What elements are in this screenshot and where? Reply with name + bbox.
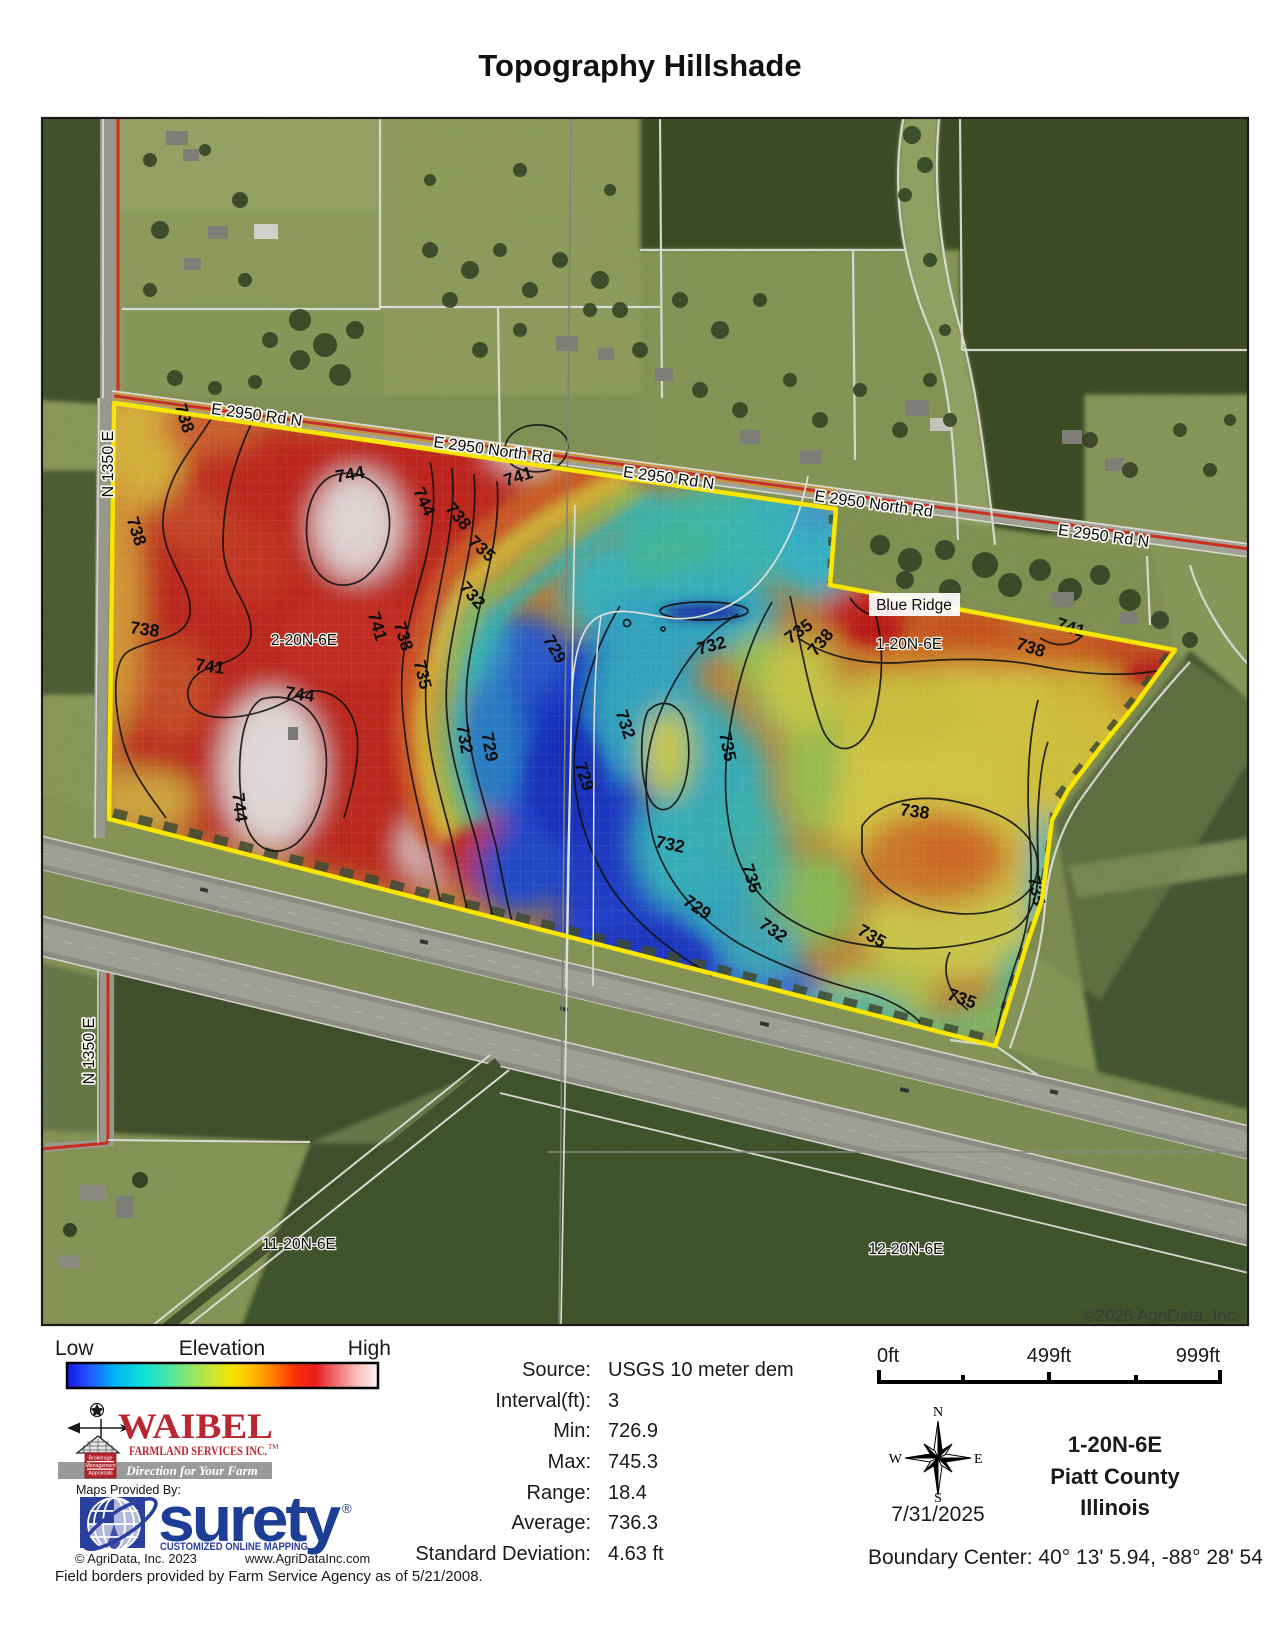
svg-text:E: E xyxy=(974,1452,983,1467)
svg-text:USGS 10 meter dem: USGS 10 meter dem xyxy=(608,1359,794,1381)
svg-text:18.4: 18.4 xyxy=(608,1482,647,1504)
svg-text:7/31/2025: 7/31/2025 xyxy=(891,1503,984,1526)
svg-text:4.63 ft: 4.63 ft xyxy=(608,1543,664,1565)
svg-text:N 1350 E: N 1350 E xyxy=(81,1018,98,1085)
svg-text:Standard Deviation:: Standard Deviation: xyxy=(415,1543,591,1565)
svg-text:2-20N-6E: 2-20N-6E xyxy=(271,632,337,649)
svg-text:12-20N-6E: 12-20N-6E xyxy=(869,1241,944,1258)
svg-text:Elevation: Elevation xyxy=(179,1337,265,1360)
svg-text:N: N xyxy=(933,1405,943,1420)
svg-text:999ft: 999ft xyxy=(1176,1345,1221,1367)
svg-text:11-20N-6E: 11-20N-6E xyxy=(262,1236,336,1253)
svg-text:© AgriData, Inc. 2023: © AgriData, Inc. 2023 xyxy=(75,1551,197,1566)
svg-text:0ft: 0ft xyxy=(877,1345,900,1367)
svg-text:©2025 AgriData, Inc.: ©2025 AgriData, Inc. xyxy=(1083,1306,1240,1325)
svg-text:Direction for Your Farm: Direction for Your Farm xyxy=(125,1463,258,1478)
svg-text:Appraisals: Appraisals xyxy=(88,1471,113,1477)
svg-text:Management: Management xyxy=(85,1463,116,1469)
svg-text:WAIBEL: WAIBEL xyxy=(118,1406,273,1446)
svg-text:3: 3 xyxy=(608,1390,619,1412)
svg-text:Interval(ft):: Interval(ft): xyxy=(495,1390,591,1412)
svg-text:Low: Low xyxy=(55,1337,94,1360)
svg-text:Source:: Source: xyxy=(522,1359,591,1381)
svg-text:Topography Hillshade: Topography Hillshade xyxy=(478,48,801,83)
svg-text:Brokerage: Brokerage xyxy=(89,1456,113,1462)
svg-text:Max:: Max: xyxy=(548,1451,591,1473)
svg-text:N 1350 E: N 1350 E xyxy=(100,431,117,498)
svg-text:Illinois: Illinois xyxy=(1080,1495,1150,1520)
svg-text:Blue Ridge: Blue Ridge xyxy=(876,597,952,614)
svg-text:1-20N-6E: 1-20N-6E xyxy=(1068,1432,1162,1457)
svg-text:FARMLAND SERVICES INC.: FARMLAND SERVICES INC. xyxy=(129,1444,267,1458)
svg-text:High: High xyxy=(348,1337,391,1360)
svg-text:Range:: Range: xyxy=(527,1482,592,1504)
svg-text:TM: TM xyxy=(268,1443,279,1451)
svg-text:Average:: Average: xyxy=(511,1512,591,1534)
svg-text:499ft: 499ft xyxy=(1027,1345,1072,1367)
svg-text:1-20N-6E: 1-20N-6E xyxy=(876,636,942,653)
svg-text:®: ® xyxy=(342,1501,352,1516)
svg-text:W: W xyxy=(889,1452,903,1467)
svg-text:www.AgriDataInc.com: www.AgriDataInc.com xyxy=(244,1551,370,1566)
svg-text:745.3: 745.3 xyxy=(608,1451,658,1473)
svg-text:726.9: 726.9 xyxy=(608,1420,658,1442)
svg-text:736.3: 736.3 xyxy=(608,1512,658,1534)
svg-text:Field borders provided by Farm: Field borders provided by Farm Service A… xyxy=(55,1568,483,1585)
svg-text:Piatt County: Piatt County xyxy=(1050,1464,1180,1489)
svg-text:Min:: Min: xyxy=(553,1420,591,1442)
svg-text:Boundary Center: 40° 13' 5.94,: Boundary Center: 40° 13' 5.94, -88° 28' … xyxy=(868,1546,1263,1569)
